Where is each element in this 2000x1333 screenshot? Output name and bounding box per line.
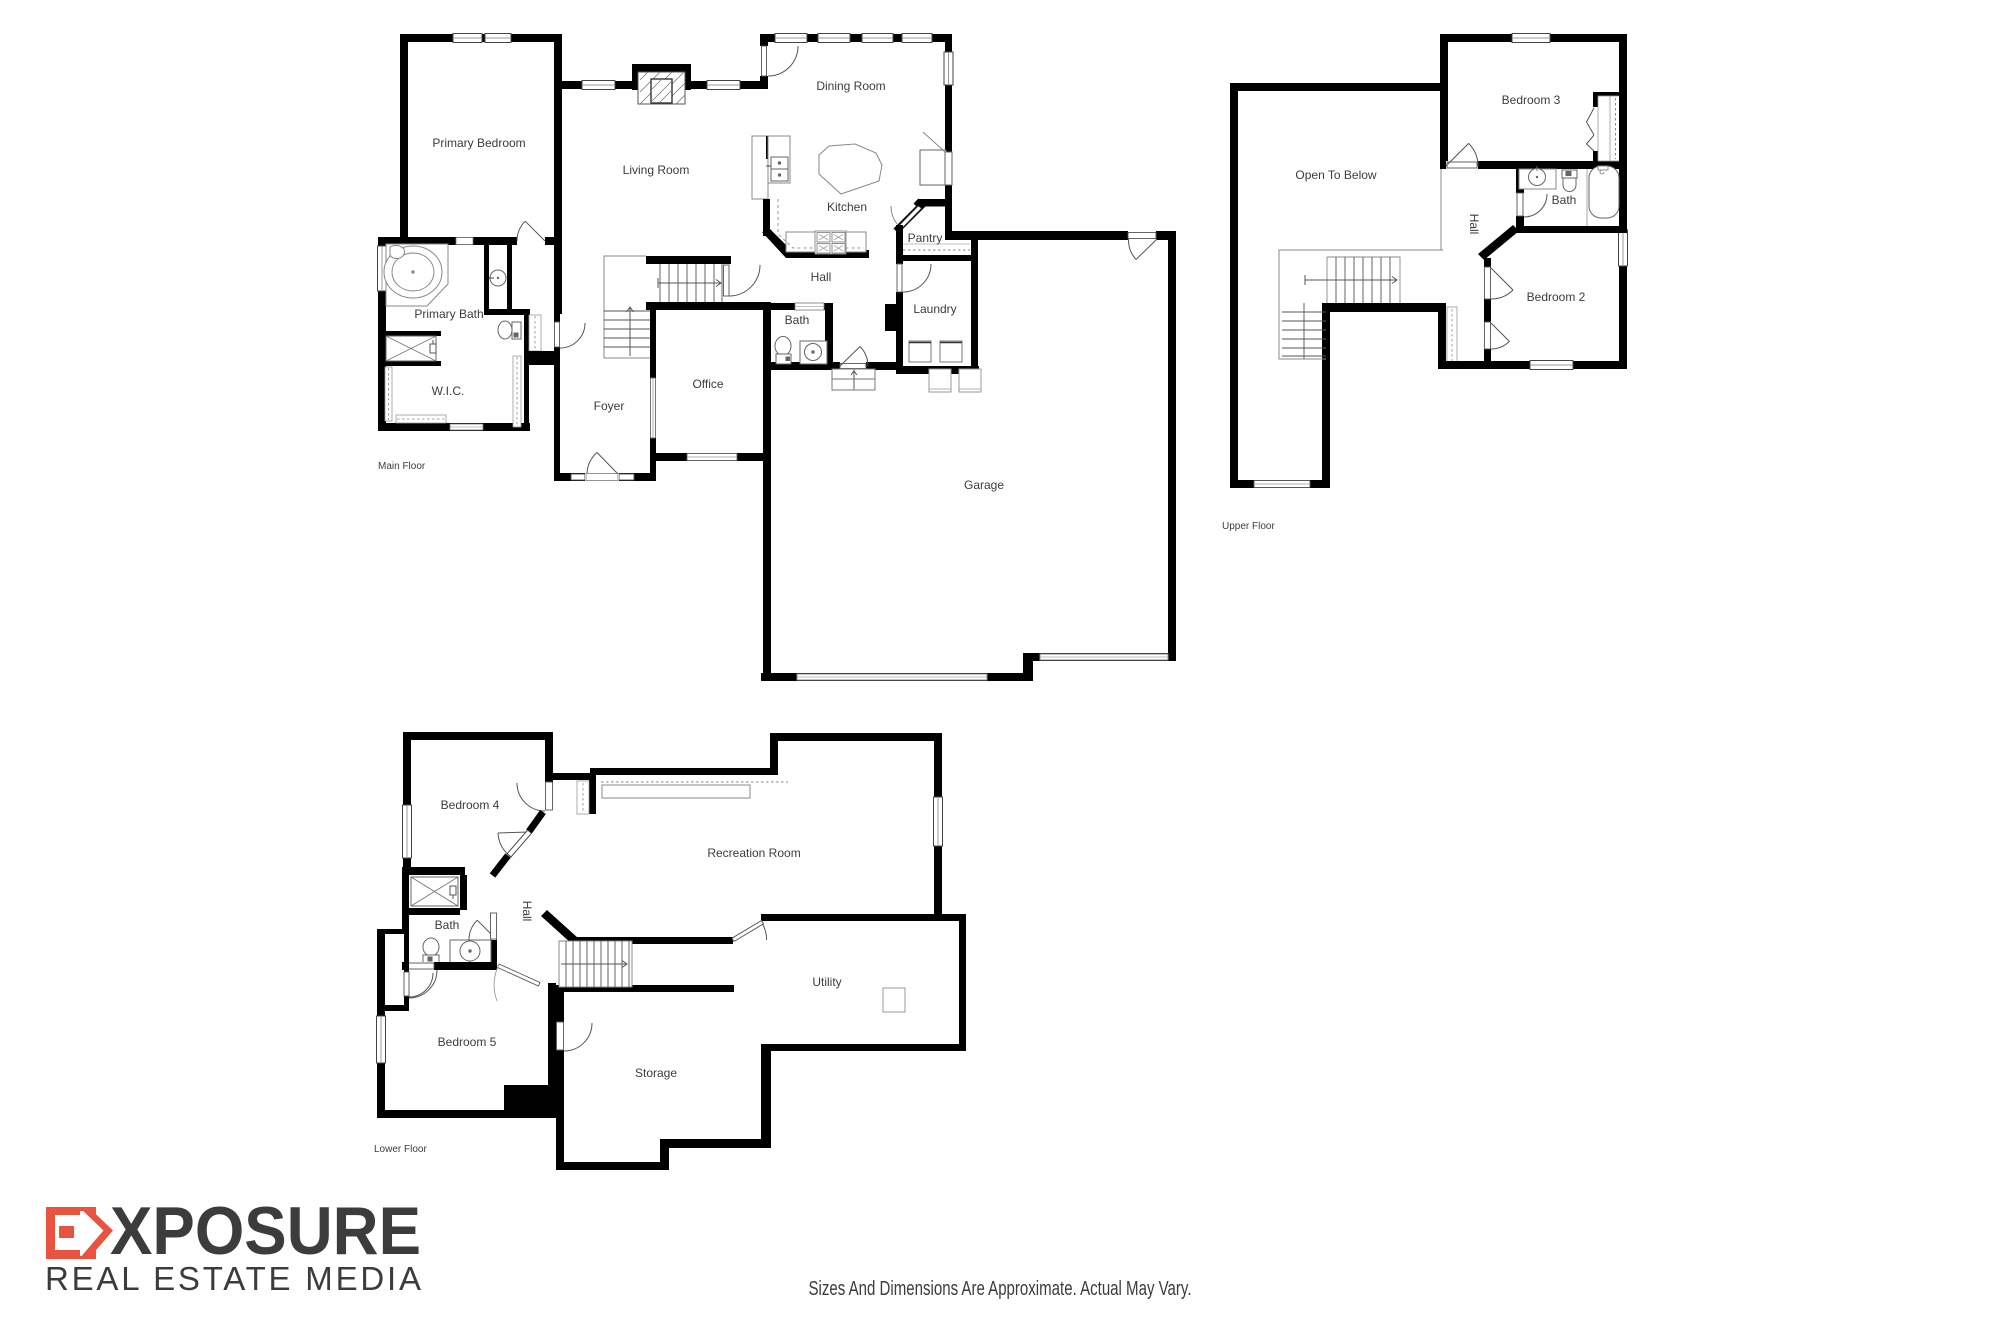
svg-text:REAL ESTATE MEDIA: REAL ESTATE MEDIA [45, 1260, 421, 1297]
svg-text:Bedroom 4: Bedroom 4 [441, 798, 500, 812]
svg-text:Office: Office [692, 377, 723, 391]
svg-text:Hall: Hall [811, 270, 832, 284]
svg-text:Recreation Room: Recreation Room [707, 846, 800, 860]
svg-text:Garage: Garage [964, 478, 1004, 492]
svg-text:Utility: Utility [812, 975, 841, 989]
svg-text:Laundry: Laundry [913, 302, 956, 316]
svg-text:Foyer: Foyer [594, 399, 625, 413]
svg-text:Dining Room: Dining Room [816, 79, 885, 93]
svg-text:Bedroom 2: Bedroom 2 [1527, 290, 1586, 304]
svg-text:Bath: Bath [1552, 193, 1577, 207]
svg-text:Main Floor: Main Floor [378, 461, 426, 472]
svg-text:Pantry: Pantry [908, 231, 943, 245]
svg-text:Primary Bath: Primary Bath [414, 307, 483, 321]
svg-text:Upper Floor: Upper Floor [1222, 521, 1275, 532]
svg-text:Storage: Storage [635, 1066, 677, 1080]
svg-text:Lower Floor: Lower Floor [374, 1144, 427, 1155]
svg-text:XPOSURE: XPOSURE [110, 1193, 421, 1269]
svg-text:W.I.C.: W.I.C. [432, 384, 465, 398]
svg-text:Sizes And Dimensions Are Appro: Sizes And Dimensions Are Approximate. Ac… [809, 1278, 1192, 1300]
svg-text:Bedroom 5: Bedroom 5 [438, 1035, 497, 1049]
svg-text:Bath: Bath [435, 918, 460, 932]
svg-text:Open To Below: Open To Below [1295, 168, 1376, 182]
svg-text:Living Room: Living Room [623, 163, 690, 177]
svg-text:Hall: Hall [520, 901, 534, 922]
svg-text:Bath: Bath [785, 313, 810, 327]
svg-text:Hall: Hall [1467, 214, 1481, 235]
svg-text:Primary Bedroom: Primary Bedroom [432, 136, 525, 150]
svg-text:Kitchen: Kitchen [827, 200, 867, 214]
svg-text:Bedroom 3: Bedroom 3 [1502, 93, 1561, 107]
